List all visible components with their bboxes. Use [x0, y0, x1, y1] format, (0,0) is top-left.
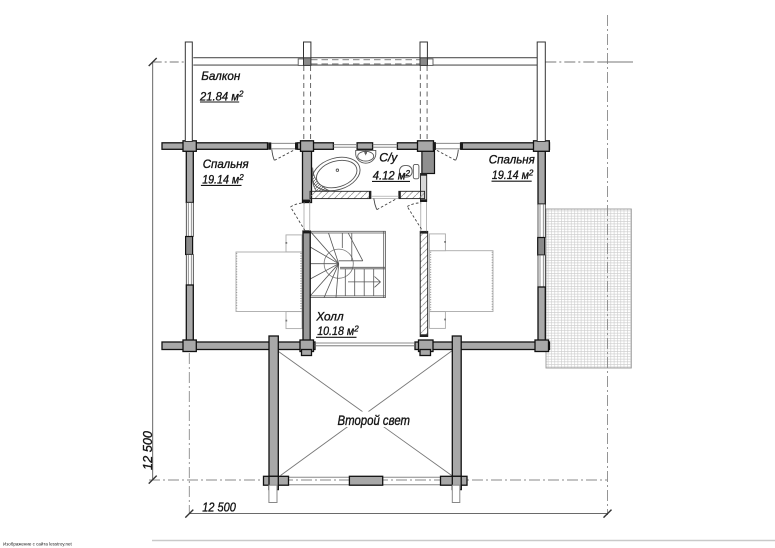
svg-text:Спальня: Спальня [489, 153, 535, 167]
svg-text:12 500: 12 500 [202, 499, 236, 514]
svg-text:Балкон: Балкон [201, 69, 240, 83]
svg-text:10.18 м2: 10.18 м2 [317, 324, 359, 338]
svg-text:12 500: 12 500 [140, 430, 155, 470]
svg-text:Спальня: Спальня [203, 157, 249, 171]
svg-text:21.84 м2: 21.84 м2 [199, 89, 244, 103]
svg-text:4.12 м2: 4.12 м2 [373, 169, 411, 183]
svg-text:Изображение с сайта lesstroy.n: Изображение с сайта lesstroy.net [3, 541, 73, 547]
svg-text:19.14 м2: 19.14 м2 [202, 173, 244, 187]
svg-text:19.14 м2: 19.14 м2 [492, 168, 534, 182]
svg-text:С/у: С/у [379, 151, 398, 165]
svg-text:Холл: Холл [315, 310, 343, 324]
svg-text:Второй свет: Второй свет [338, 413, 411, 428]
